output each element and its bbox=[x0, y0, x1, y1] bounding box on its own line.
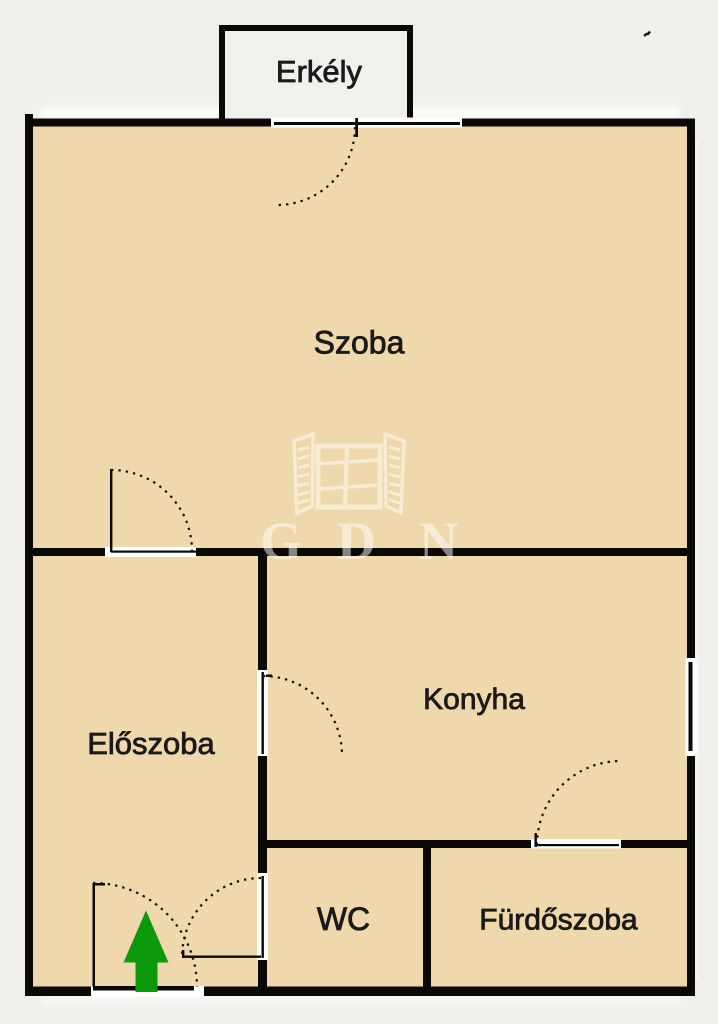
svg-text:Fürdőszoba: Fürdőszoba bbox=[479, 904, 638, 937]
svg-text:Előszoba: Előszoba bbox=[87, 726, 215, 761]
svg-text:Konyha: Konyha bbox=[423, 683, 525, 716]
svg-text:G: G bbox=[260, 511, 302, 571]
svg-text:D: D bbox=[337, 511, 376, 571]
svg-text:WC: WC bbox=[317, 901, 370, 937]
svg-text:N: N bbox=[419, 511, 458, 571]
svg-text:Szoba: Szoba bbox=[314, 325, 405, 361]
svg-text:Erkély: Erkély bbox=[276, 54, 363, 89]
